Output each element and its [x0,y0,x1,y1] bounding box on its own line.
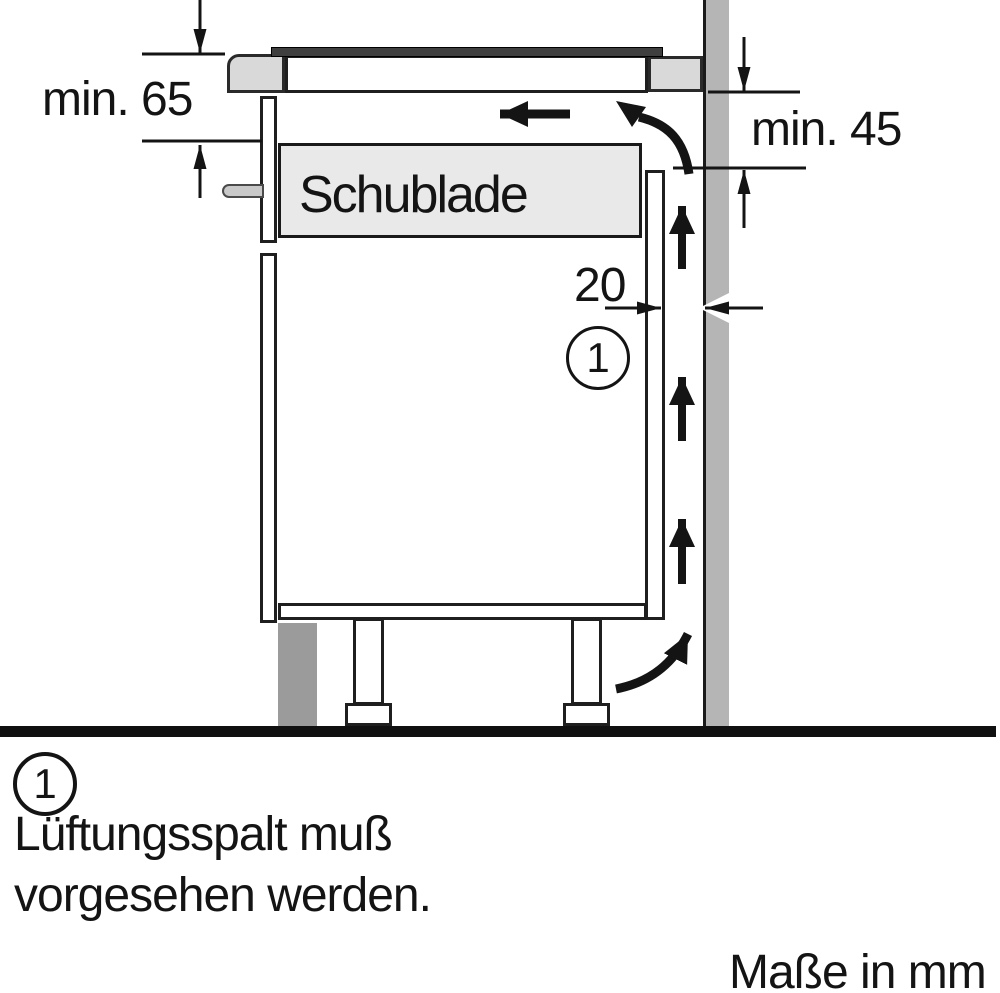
worktop-front-section [227,54,285,93]
footnote-line-2: vorgesehen werden. [14,871,431,921]
dim-gap20 [605,291,763,325]
drawer-label: Schublade [299,169,527,221]
footnote-line-1: Lüftungsspalt muß [14,810,392,860]
cabinet-leg-foot [345,703,392,726]
cabinet-rear-panel [645,170,665,620]
dim-label-gap20: 20 [574,262,625,310]
airflow-arrow-curve-top [639,117,689,174]
hob-body [285,55,648,93]
installation-diagram: Schublade [0,0,1000,993]
airflow-arrow-curve-bottom [616,634,688,689]
airflow-arrow-curve-top-head [616,101,646,127]
floor-line [0,726,996,737]
cabinet-leg [571,618,602,705]
footnote-marker-number: 1 [33,760,56,808]
plinth-panel [278,623,317,726]
drawer-box: Schublade [278,143,642,238]
drawer-handle [222,184,264,198]
worktop-rear-section [648,56,703,92]
cabinet-door-front [260,253,277,623]
wall-section [703,0,729,726]
dim-label-min65: min. 65 [42,76,192,124]
cabinet-leg [353,618,384,705]
callout-1-marker: 1 [566,326,630,390]
units-note: Maße in mm [729,948,986,993]
drawer-front-panel [260,96,277,243]
cabinet-leg-foot [563,703,610,726]
dim-label-min45: min. 45 [751,106,901,154]
hob-glass-top [271,47,663,57]
callout-1-number: 1 [586,334,609,382]
footnote-marker: 1 [13,752,77,816]
